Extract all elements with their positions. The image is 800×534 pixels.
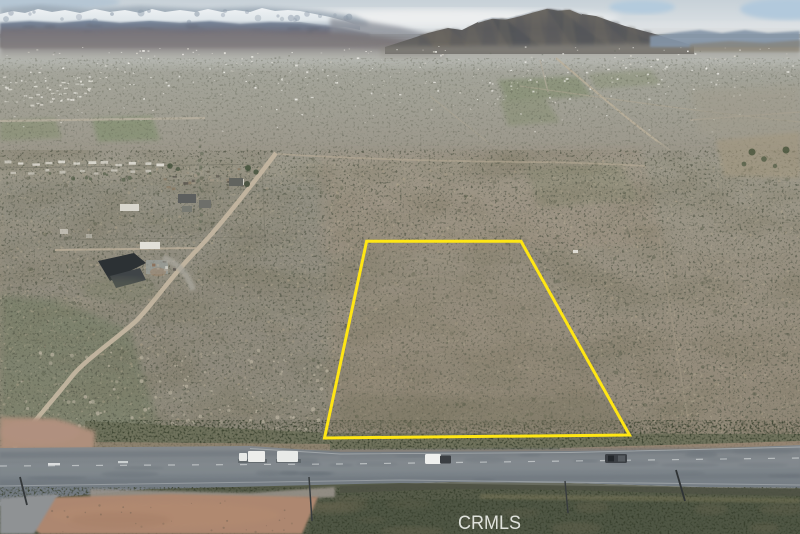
svg-text:CRMLS: CRMLS [458, 512, 521, 534]
